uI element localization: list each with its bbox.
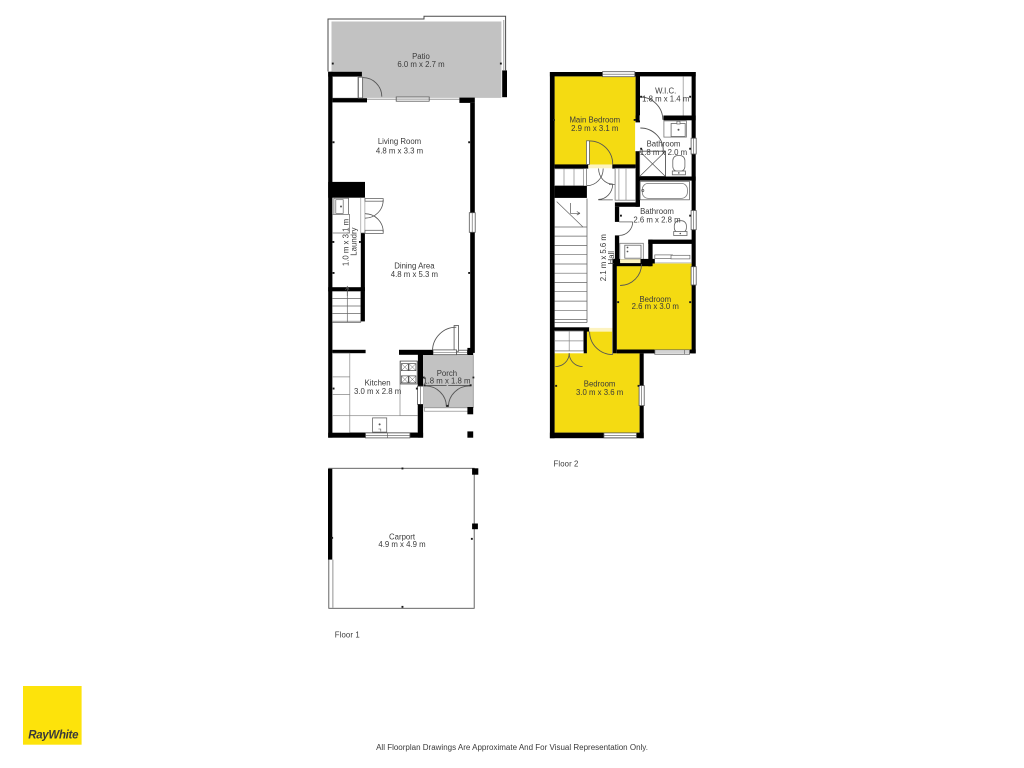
svg-text:Floor 2: Floor 2 (554, 459, 579, 468)
svg-text:4.8 m x 5.3 m: 4.8 m x 5.3 m (391, 270, 438, 279)
svg-text:1.0 m x 3.1 m: 1.0 m x 3.1 m (342, 219, 351, 266)
svg-text:Floor 1: Floor 1 (335, 631, 360, 640)
svg-text:Bathroom: Bathroom (647, 139, 681, 148)
svg-text:3.0 m x 3.6 m: 3.0 m x 3.6 m (576, 388, 623, 397)
svg-text:2.9 m x 3.1 m: 2.9 m x 3.1 m (571, 124, 618, 133)
svg-text:2.1 m x 5.6 m: 2.1 m x 5.6 m (599, 234, 608, 281)
svg-text:All Floorplan Drawings Are App: All Floorplan Drawings Are Approximate A… (376, 743, 648, 752)
svg-text:Laundry: Laundry (349, 227, 358, 255)
svg-text:1.8 m x 1.8 m: 1.8 m x 1.8 m (423, 377, 470, 386)
svg-text:RayWhite: RayWhite (28, 730, 79, 742)
svg-text:Hall: Hall (607, 251, 616, 265)
svg-text:1.8 m x 1.4 m: 1.8 m x 1.4 m (642, 95, 689, 104)
svg-text:3.0 m x 2.8 m: 3.0 m x 2.8 m (354, 387, 401, 396)
svg-text:Living Room: Living Room (378, 137, 421, 146)
svg-text:1.8 m x 2.0 m: 1.8 m x 2.0 m (640, 148, 687, 157)
svg-text:6.0 m x 2.7 m: 6.0 m x 2.7 m (397, 60, 444, 69)
svg-text:4.8 m x 3.3 m: 4.8 m x 3.3 m (376, 146, 423, 155)
svg-text:2.6 m x 3.0 m: 2.6 m x 3.0 m (632, 302, 679, 311)
svg-text:2.6 m x 2.8 m: 2.6 m x 2.8 m (633, 216, 680, 225)
svg-text:4.9 m x 4.9 m: 4.9 m x 4.9 m (378, 540, 425, 549)
